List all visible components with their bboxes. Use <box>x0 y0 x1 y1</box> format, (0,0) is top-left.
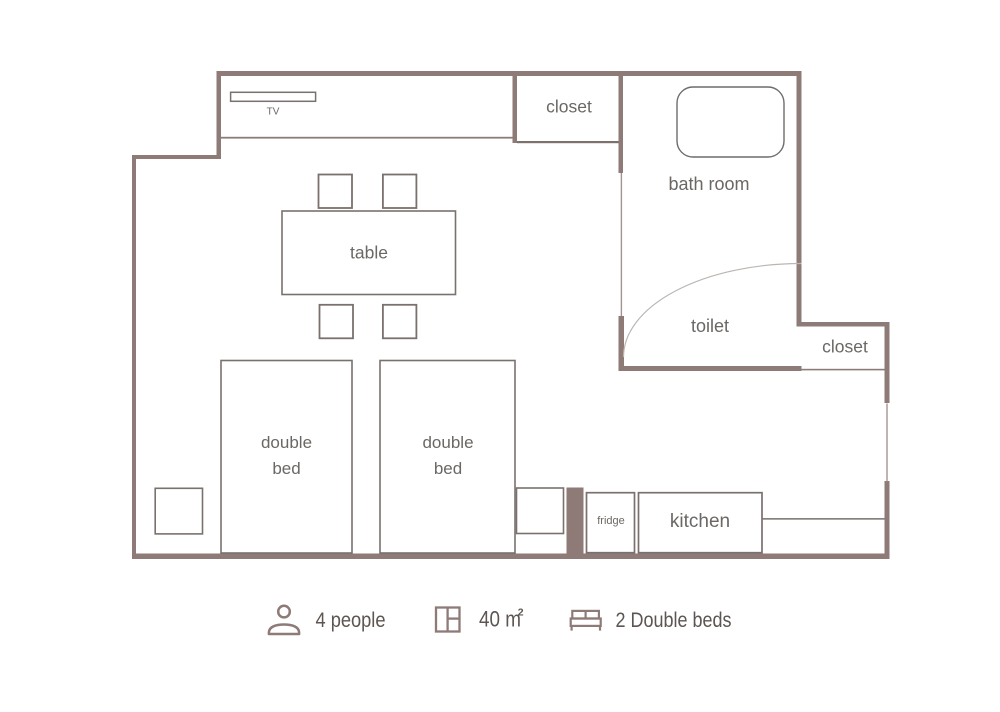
svg-text:bed: bed <box>272 459 300 478</box>
svg-text:2: 2 <box>518 607 524 619</box>
svg-text:kitchen: kitchen <box>670 511 730 532</box>
svg-text:double: double <box>261 433 312 452</box>
svg-text:2 Double beds: 2 Double beds <box>616 609 732 632</box>
svg-text:40 m: 40 m <box>479 607 521 632</box>
svg-text:bed: bed <box>434 459 462 478</box>
svg-text:TV: TV <box>267 107 280 118</box>
svg-text:closet: closet <box>546 97 592 117</box>
svg-text:double: double <box>422 433 473 452</box>
svg-text:closet: closet <box>822 337 868 357</box>
svg-text:bath room: bath room <box>668 174 749 194</box>
svg-text:4 people: 4 people <box>316 609 386 632</box>
svg-text:toilet: toilet <box>691 316 729 336</box>
svg-text:table: table <box>350 243 388 263</box>
svg-text:fridge: fridge <box>597 515 625 527</box>
